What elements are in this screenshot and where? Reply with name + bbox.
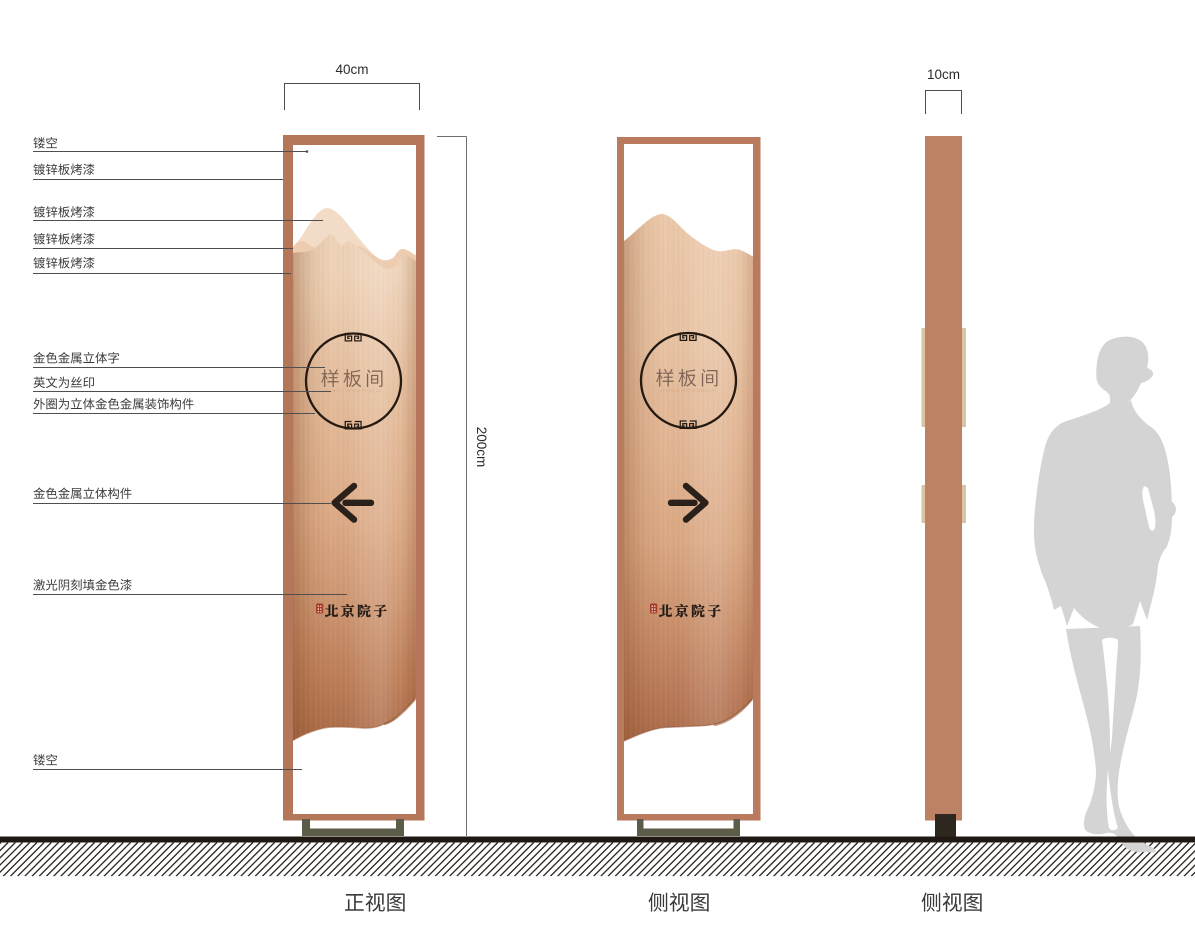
svg-text:200cm: 200cm <box>474 427 489 468</box>
svg-text:40cm: 40cm <box>335 62 368 77</box>
svg-text:SAMPLE ROOM DISPLAY: SAMPLE ROOM DISPLAY <box>325 389 382 394</box>
svg-text:SAMPLE ROOM DISPLAY: SAMPLE ROOM DISPLAY <box>660 388 717 393</box>
svg-text:10cm: 10cm <box>927 67 960 82</box>
